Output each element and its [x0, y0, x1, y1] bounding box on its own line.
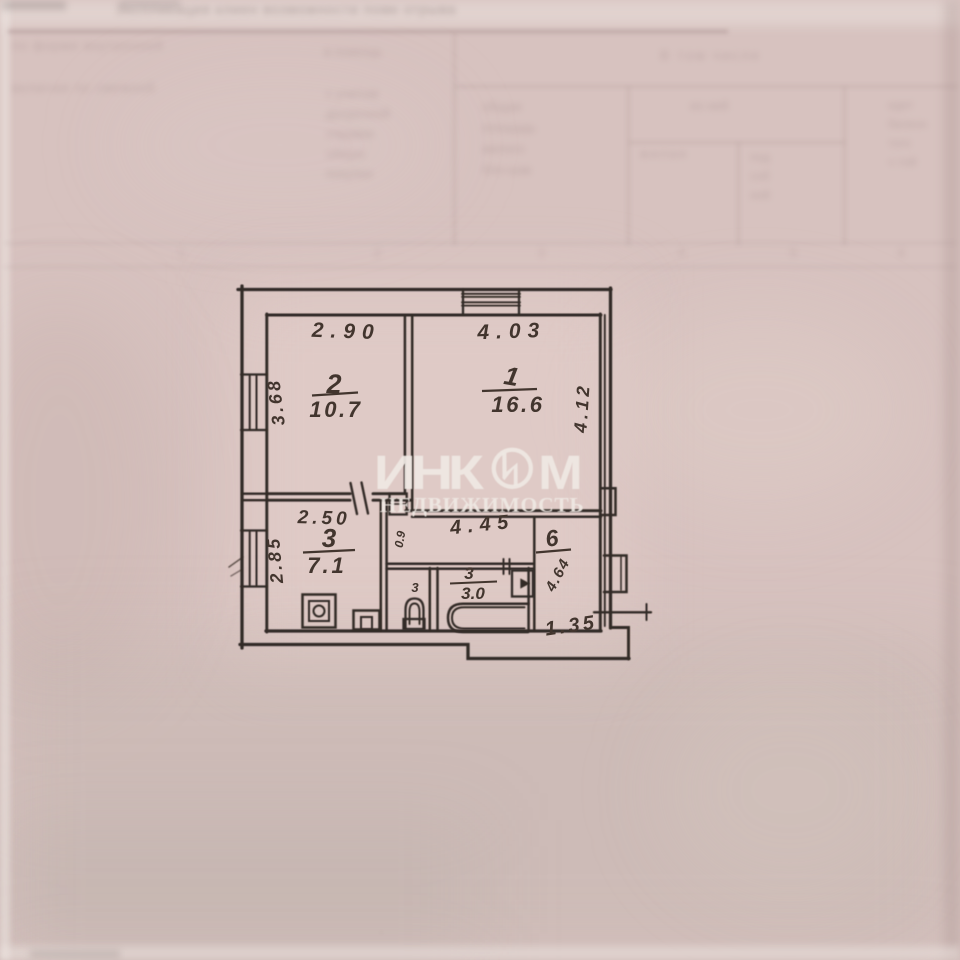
- svg-text:4.12: 4.12: [570, 382, 594, 435]
- svg-text:4.03: 4.03: [476, 319, 547, 344]
- svg-text:НЕДВИЖИМОСТЬ: НЕДВИЖИМОСТЬ: [380, 493, 585, 517]
- svg-text:3: 3: [322, 523, 337, 553]
- svg-text:1: 1: [502, 360, 521, 392]
- svg-text:М: М: [538, 446, 583, 500]
- svg-text:ИНК: ИНК: [374, 446, 484, 500]
- svg-text:6: 6: [544, 524, 560, 552]
- svg-text:2.90: 2.90: [310, 319, 381, 344]
- svg-text:10.7: 10.7: [309, 397, 362, 422]
- svg-text:3: 3: [464, 564, 474, 583]
- svg-text:2.85: 2.85: [263, 535, 287, 585]
- svg-text:3: 3: [411, 580, 419, 595]
- svg-text:0.9: 0.9: [392, 530, 409, 549]
- svg-text:3.0: 3.0: [461, 584, 485, 603]
- svg-text:16.6: 16.6: [491, 392, 544, 417]
- svg-text:1.35: 1.35: [544, 612, 599, 641]
- svg-text:4.64: 4.64: [542, 555, 574, 595]
- svg-text:7.1: 7.1: [307, 553, 347, 578]
